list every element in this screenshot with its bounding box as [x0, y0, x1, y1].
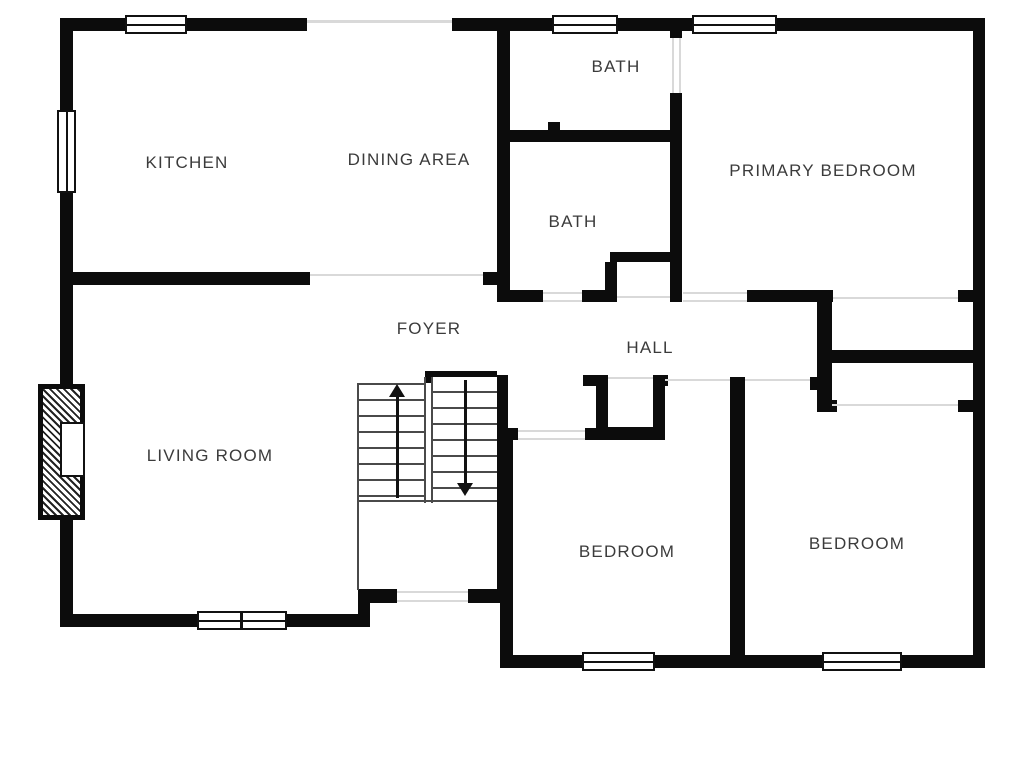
wall-segment [497, 30, 510, 302]
wall-segment [670, 142, 682, 262]
wall-segment [60, 18, 73, 110]
room-label-primary-bedroom: PRIMARY BEDROOM [729, 161, 916, 181]
wall-segment [730, 377, 745, 655]
wall-segment [958, 400, 973, 412]
wall-segment [810, 377, 817, 390]
door-opening-line [543, 300, 582, 302]
staircase-treads [359, 385, 424, 499]
wall-segment [60, 272, 310, 285]
window [822, 652, 902, 671]
wall-segment [60, 193, 73, 384]
door-opening-line [672, 38, 674, 93]
wall-segment [817, 400, 837, 412]
stairs-up-arrow-icon [389, 384, 405, 397]
window-mullion [554, 24, 616, 26]
room-label-foyer: FOYER [397, 319, 462, 339]
door-opening-line [617, 296, 670, 298]
wall-segment [670, 262, 682, 302]
stairs-down-arrow-shaft [464, 380, 467, 483]
wall-segment [777, 18, 985, 31]
room-label-hall: HALL [626, 338, 673, 358]
wall-segment [582, 290, 610, 302]
window-mullion [694, 24, 775, 26]
wall-segment [670, 93, 682, 142]
door-opening-line [310, 274, 483, 276]
window [552, 15, 618, 34]
wall-segment [973, 18, 985, 668]
room-label-bath-upper: BATH [592, 57, 641, 77]
window [57, 110, 76, 193]
stairs-down-arrow-icon [457, 483, 473, 496]
wall-segment [958, 290, 973, 302]
window-mullion [584, 661, 653, 663]
door-opening-line [683, 300, 747, 302]
door-opening-line [518, 438, 585, 440]
room-label-living-room: LIVING ROOM [147, 446, 274, 466]
door-opening-line [832, 404, 958, 406]
window [125, 15, 187, 34]
fireplace-box [60, 422, 85, 477]
window [197, 611, 287, 630]
window [692, 15, 777, 34]
wall-segment [500, 130, 682, 142]
wall-segment [60, 614, 197, 627]
door-opening-line [683, 292, 747, 294]
door-opening-line [745, 379, 810, 381]
wall-segment [187, 18, 307, 31]
wall-segment [500, 655, 582, 668]
room-label-bedroom-left: BEDROOM [579, 542, 675, 562]
wall-segment [548, 122, 560, 130]
wall-segment [902, 655, 985, 668]
wall-segment [358, 589, 397, 603]
room-label-bath-lower: BATH [549, 212, 598, 232]
wall-segment [596, 427, 665, 437]
door-opening-line [543, 292, 582, 294]
wall-segment [610, 252, 682, 262]
wall-opening-glass-line [307, 20, 452, 23]
door-opening-line [679, 38, 681, 93]
window-mullion [66, 112, 68, 191]
window-mullion [824, 661, 900, 663]
wall-segment [497, 375, 508, 603]
wall-segment [500, 290, 543, 302]
stairs-up-arrow-shaft [396, 395, 399, 498]
window-divider [240, 612, 243, 629]
wall-segment [670, 31, 682, 38]
door-opening-line [665, 379, 730, 381]
wall-segment [817, 350, 977, 363]
wall-segment [583, 375, 596, 386]
window-mullion [127, 24, 185, 26]
room-label-kitchen: KITCHEN [145, 153, 228, 173]
staircase-line [424, 377, 426, 503]
door-opening-line [608, 377, 653, 379]
window [582, 652, 655, 671]
room-label-bedroom-right: BEDROOM [809, 534, 905, 554]
wall-segment [618, 18, 692, 31]
wall-segment [60, 520, 73, 627]
wall-segment [655, 655, 822, 668]
floor-plan: KITCHENDINING AREABATHBATHPRIMARY BEDROO… [0, 0, 1024, 768]
door-opening-line [518, 430, 585, 432]
staircase-line [359, 500, 497, 502]
door-opening-line [397, 600, 468, 602]
room-label-dining-area: DINING AREA [348, 150, 471, 170]
door-opening-line [397, 591, 468, 593]
door-opening-line [833, 297, 958, 299]
